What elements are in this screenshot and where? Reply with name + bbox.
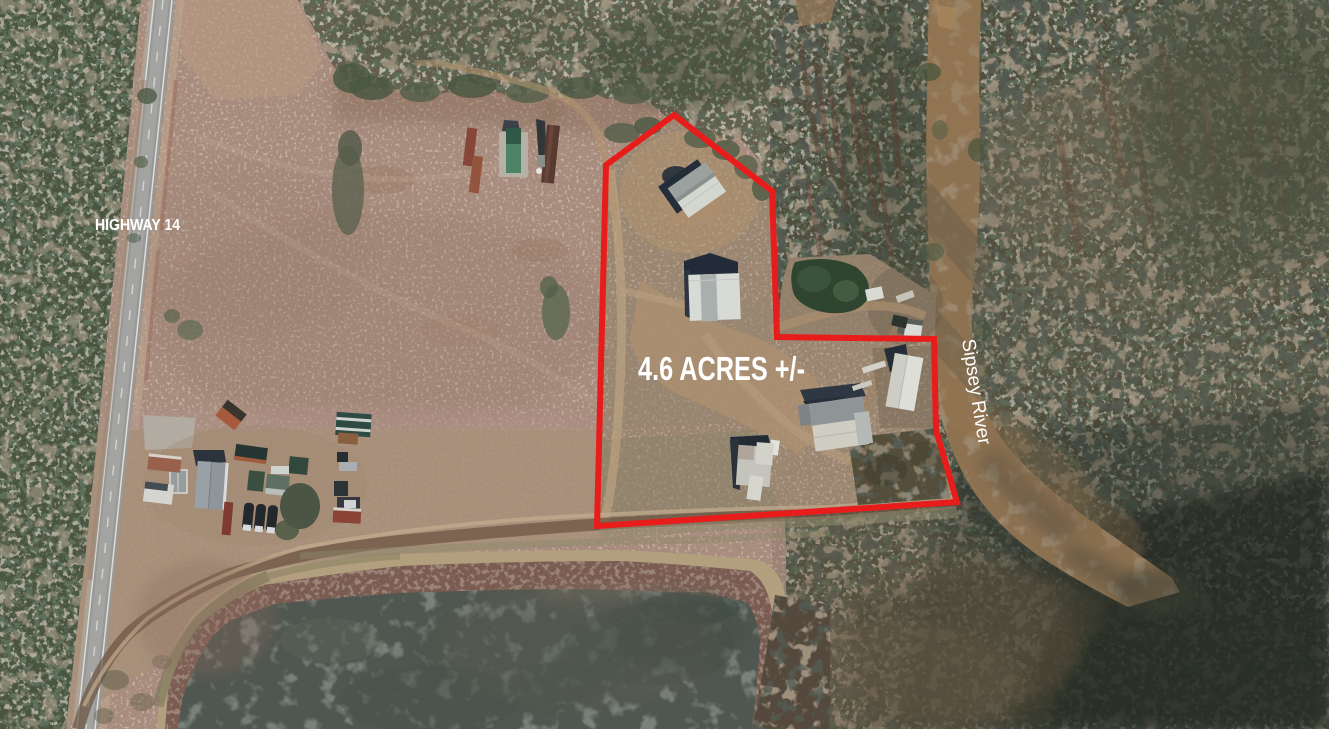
svg-text:HIGHWAY 14: HIGHWAY 14 xyxy=(95,217,180,234)
svg-text:4.6 ACRES +/-: 4.6 ACRES +/- xyxy=(638,350,805,387)
